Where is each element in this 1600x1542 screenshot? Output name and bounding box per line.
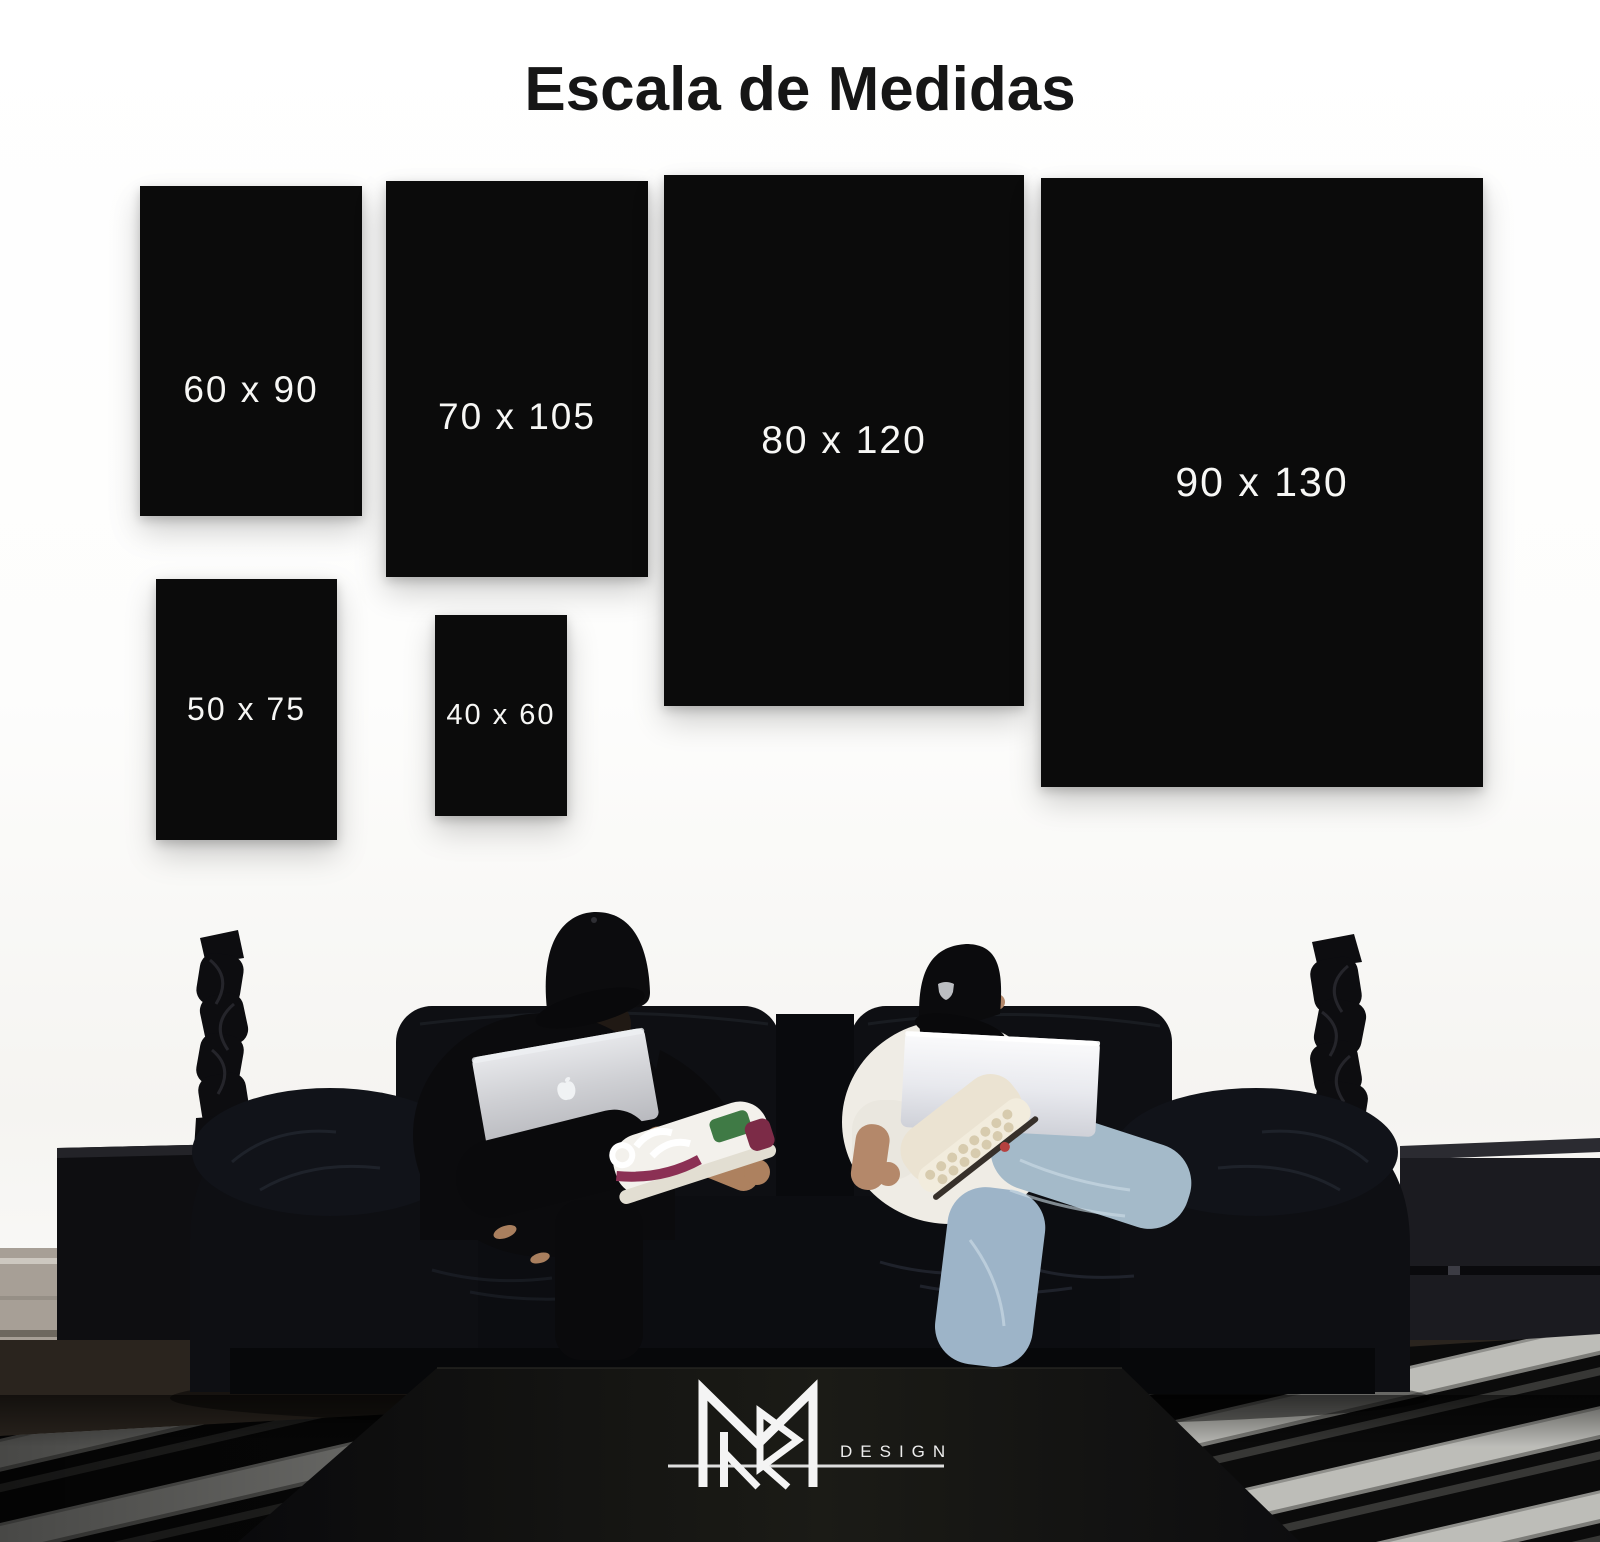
logo-design-label: DESIGN: [840, 1442, 953, 1461]
page-title: Escala de Medidas: [0, 54, 1600, 125]
size-label-40x60: 40 x 60: [446, 699, 555, 732]
size-tile-90x130: 90 x 130: [1041, 178, 1483, 787]
size-tile-70x105: 70 x 105: [386, 181, 648, 577]
size-label-90x130: 90 x 130: [1175, 459, 1348, 506]
size-tile-50x75: 50 x 75: [156, 579, 337, 840]
size-label-80x120: 80 x 120: [761, 419, 927, 463]
size-label-70x105: 70 x 105: [438, 396, 596, 438]
lifestyle-photo: DESIGN: [0, 830, 1600, 1542]
size-scale-poster: Escala de Medidas 60 x 90 70 x 105 80 x …: [0, 0, 1600, 1542]
size-tile-80x120: 80 x 120: [664, 175, 1024, 706]
size-tile-60x90: 60 x 90: [140, 186, 362, 516]
size-label-60x90: 60 x 90: [183, 369, 318, 411]
size-label-50x75: 50 x 75: [187, 691, 306, 728]
size-tile-40x60: 40 x 60: [435, 615, 567, 816]
black-leather-sofa: [190, 1006, 1410, 1394]
